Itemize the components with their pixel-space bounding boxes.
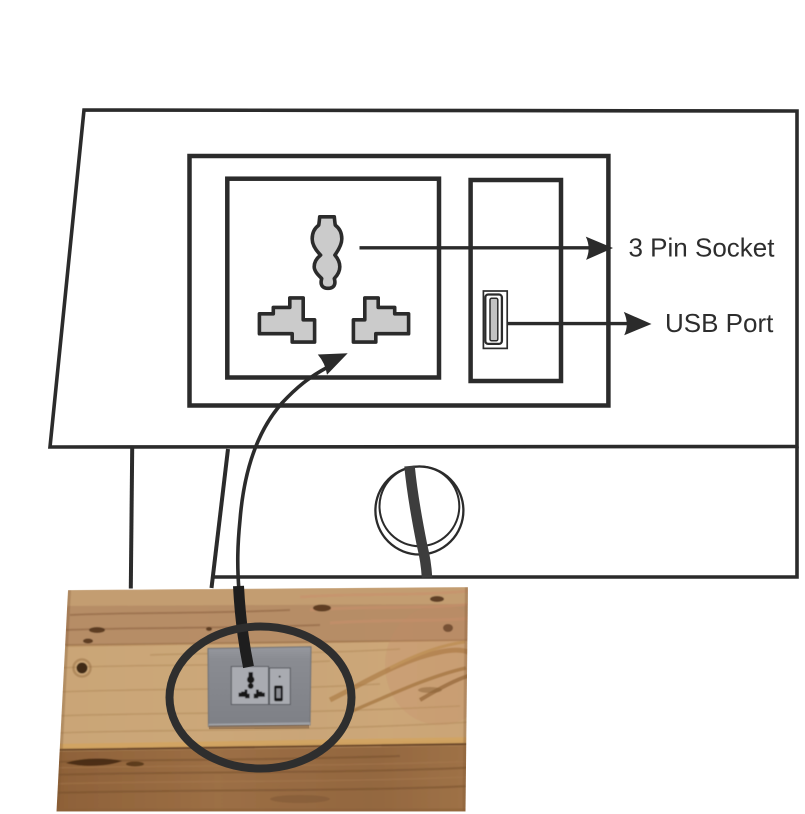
svg-text:USB Port: USB Port (665, 308, 774, 338)
svg-text:3 Pin Socket: 3 Pin Socket (629, 233, 776, 263)
